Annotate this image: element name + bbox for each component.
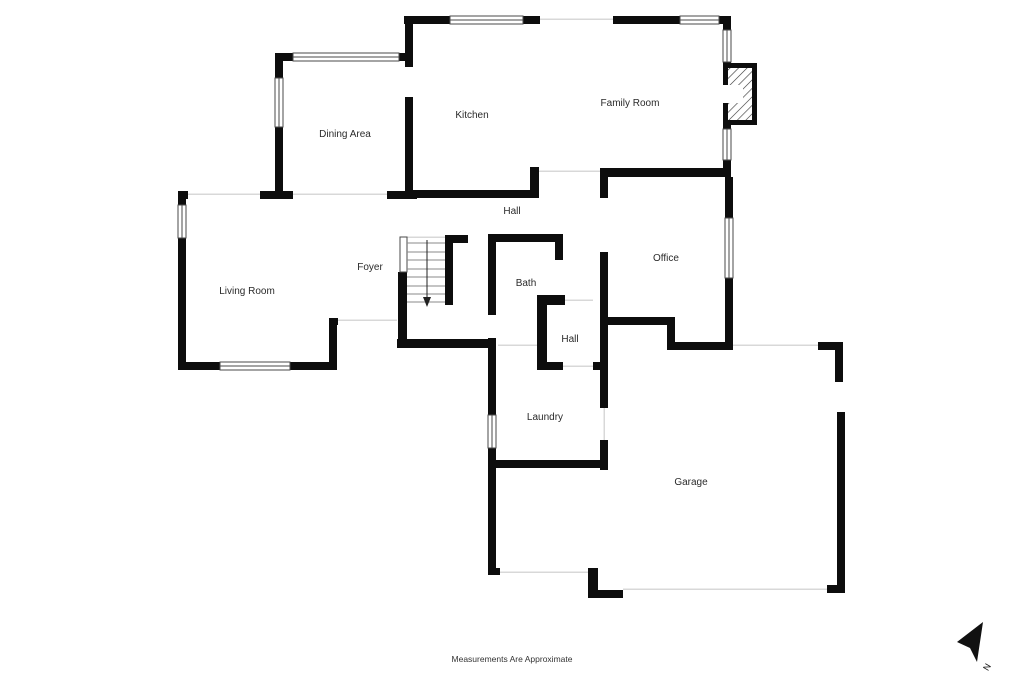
room-label-garage: Garage	[674, 477, 708, 488]
room-label-laundry: Laundry	[527, 412, 563, 423]
room-label-dining: Dining Area	[319, 129, 371, 140]
north-arrow: N	[957, 622, 993, 672]
north-label: N	[981, 662, 993, 673]
floor-plan: Dining Area Kitchen Family Room Hall Liv…	[0, 0, 1024, 683]
room-labels: Dining Area Kitchen Family Room Hall Liv…	[219, 98, 708, 488]
room-label-kitchen: Kitchen	[455, 110, 488, 121]
room-label-hall-upper: Hall	[503, 206, 520, 217]
fireplace	[723, 63, 757, 125]
room-label-hall-lower: Hall	[561, 334, 578, 345]
measurements-note: Measurements Are Approximate	[452, 654, 573, 664]
stairs-down-arrow	[423, 240, 431, 307]
room-label-office: Office	[653, 253, 679, 264]
room-label-family: Family Room	[601, 98, 660, 109]
room-label-bath: Bath	[516, 278, 537, 289]
windows	[178, 16, 733, 448]
room-label-living: Living Room	[219, 286, 275, 297]
north-arrow-icon	[957, 622, 983, 662]
floor-plan-page: Dining Area Kitchen Family Room Hall Liv…	[0, 0, 1024, 683]
room-label-foyer: Foyer	[357, 262, 383, 273]
